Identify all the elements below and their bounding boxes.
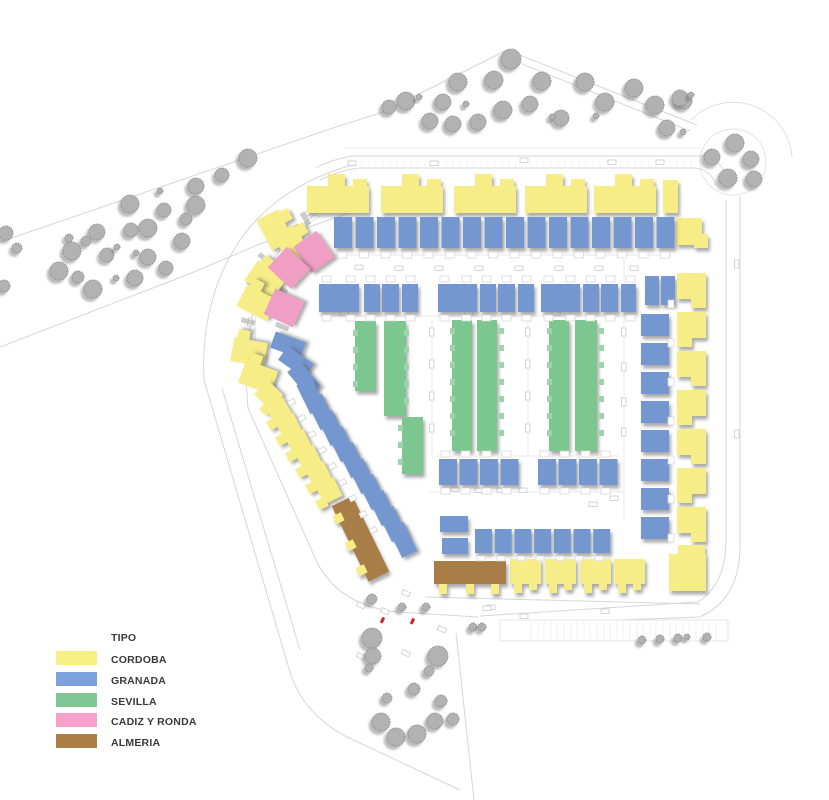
svg-text:CORDOBA: CORDOBA <box>111 654 167 666</box>
svg-text:ALMERIA: ALMERIA <box>111 737 160 749</box>
svg-text:SEVILLA: SEVILLA <box>111 696 157 708</box>
svg-text:GRANADA: GRANADA <box>111 675 166 687</box>
svg-text:CADIZ Y RONDA: CADIZ Y RONDA <box>111 716 197 728</box>
svg-text:TIPO: TIPO <box>111 632 136 644</box>
